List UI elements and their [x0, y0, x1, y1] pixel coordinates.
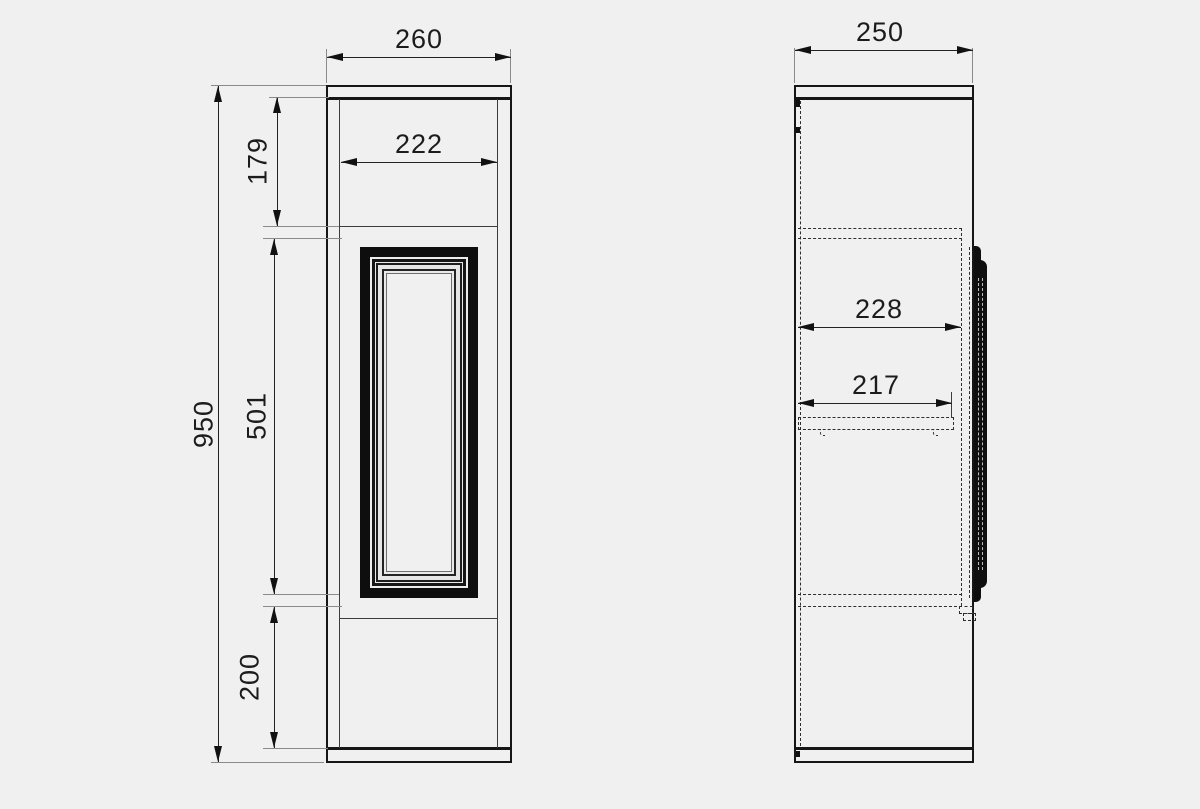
dimension-line	[798, 327, 961, 328]
arrowhead-right-icon	[945, 323, 961, 331]
dim-door-depth-label: 228	[855, 294, 903, 325]
door-slab-hidden-line	[969, 247, 970, 598]
door-top-hidden-line	[798, 238, 962, 239]
bottom-rail-hidden-step	[963, 613, 976, 621]
shelf-pin-mark	[820, 429, 825, 436]
hinge-plate-mark	[796, 751, 800, 757]
dim-overall-depth-label: 250	[856, 17, 904, 48]
door-profile-hidden-line	[982, 278, 983, 570]
door-top-hidden-line	[798, 228, 962, 229]
door-profile-bottom-hook	[974, 584, 981, 602]
door-bottom-hidden-line	[798, 594, 962, 595]
side-base-plate	[794, 748, 974, 763]
arrowhead-left-icon	[795, 46, 811, 54]
arrowhead-right-icon	[957, 46, 973, 54]
hinge-plate-mark	[796, 100, 800, 107]
dimension-line	[798, 403, 952, 404]
door-profile-hidden-line	[978, 278, 979, 570]
dim-shelf-depth-label: 217	[852, 370, 900, 401]
door-bottom-hidden-line	[798, 606, 962, 607]
hinge-plate-mark	[796, 127, 800, 133]
door-back-face-hidden-line	[961, 228, 962, 606]
arrowhead-right-icon	[936, 399, 952, 407]
arrowhead-left-icon	[798, 399, 814, 407]
side-view: 250 228 217	[0, 0, 1200, 809]
dimension-line	[795, 50, 973, 51]
arrowhead-left-icon	[798, 323, 814, 331]
shelf-pin-mark	[933, 429, 938, 436]
technical-drawing-canvas: 260 222 179 501 200 950	[0, 0, 1200, 809]
door-profile-band	[974, 276, 987, 572]
side-top-cap	[794, 85, 974, 99]
